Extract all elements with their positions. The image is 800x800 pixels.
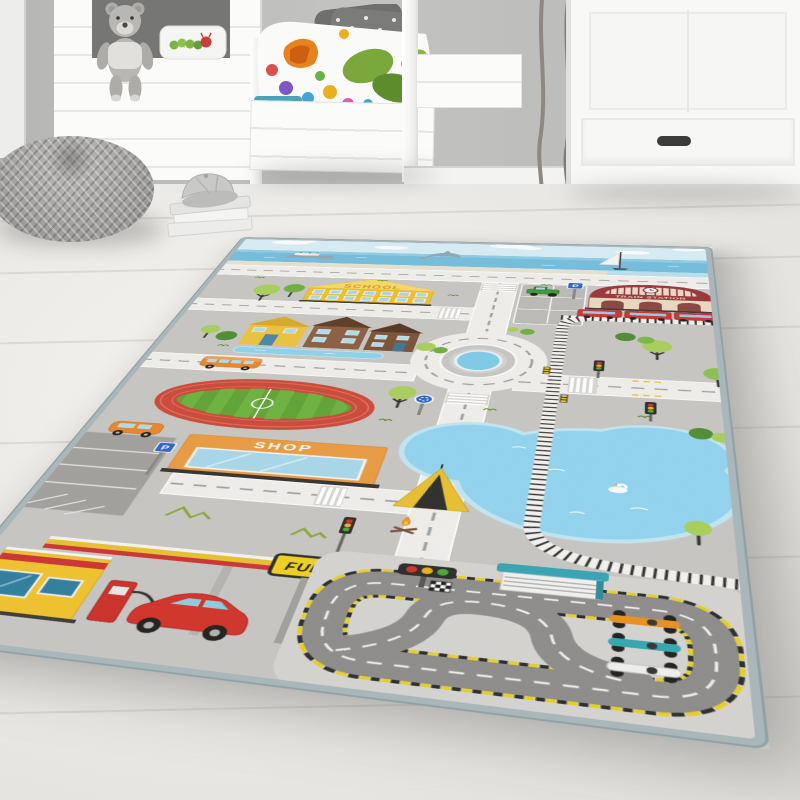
photo-children-room: SCHOOL [0,0,800,800]
wardrobe-door-seam [687,10,689,112]
teddy-bear [88,0,268,104]
book-stack-with-cap [158,162,262,242]
caterpillar-pillow [160,26,226,59]
bed-shadow [250,168,436,182]
bed-side-rail [416,54,522,108]
window-frame [0,0,26,158]
wardrobe-handle [657,136,691,146]
wardrobe-drawer [581,118,795,166]
wardrobe-shadow [566,186,800,200]
wardrobe [566,0,800,196]
teddy-bear-figure [94,3,155,102]
